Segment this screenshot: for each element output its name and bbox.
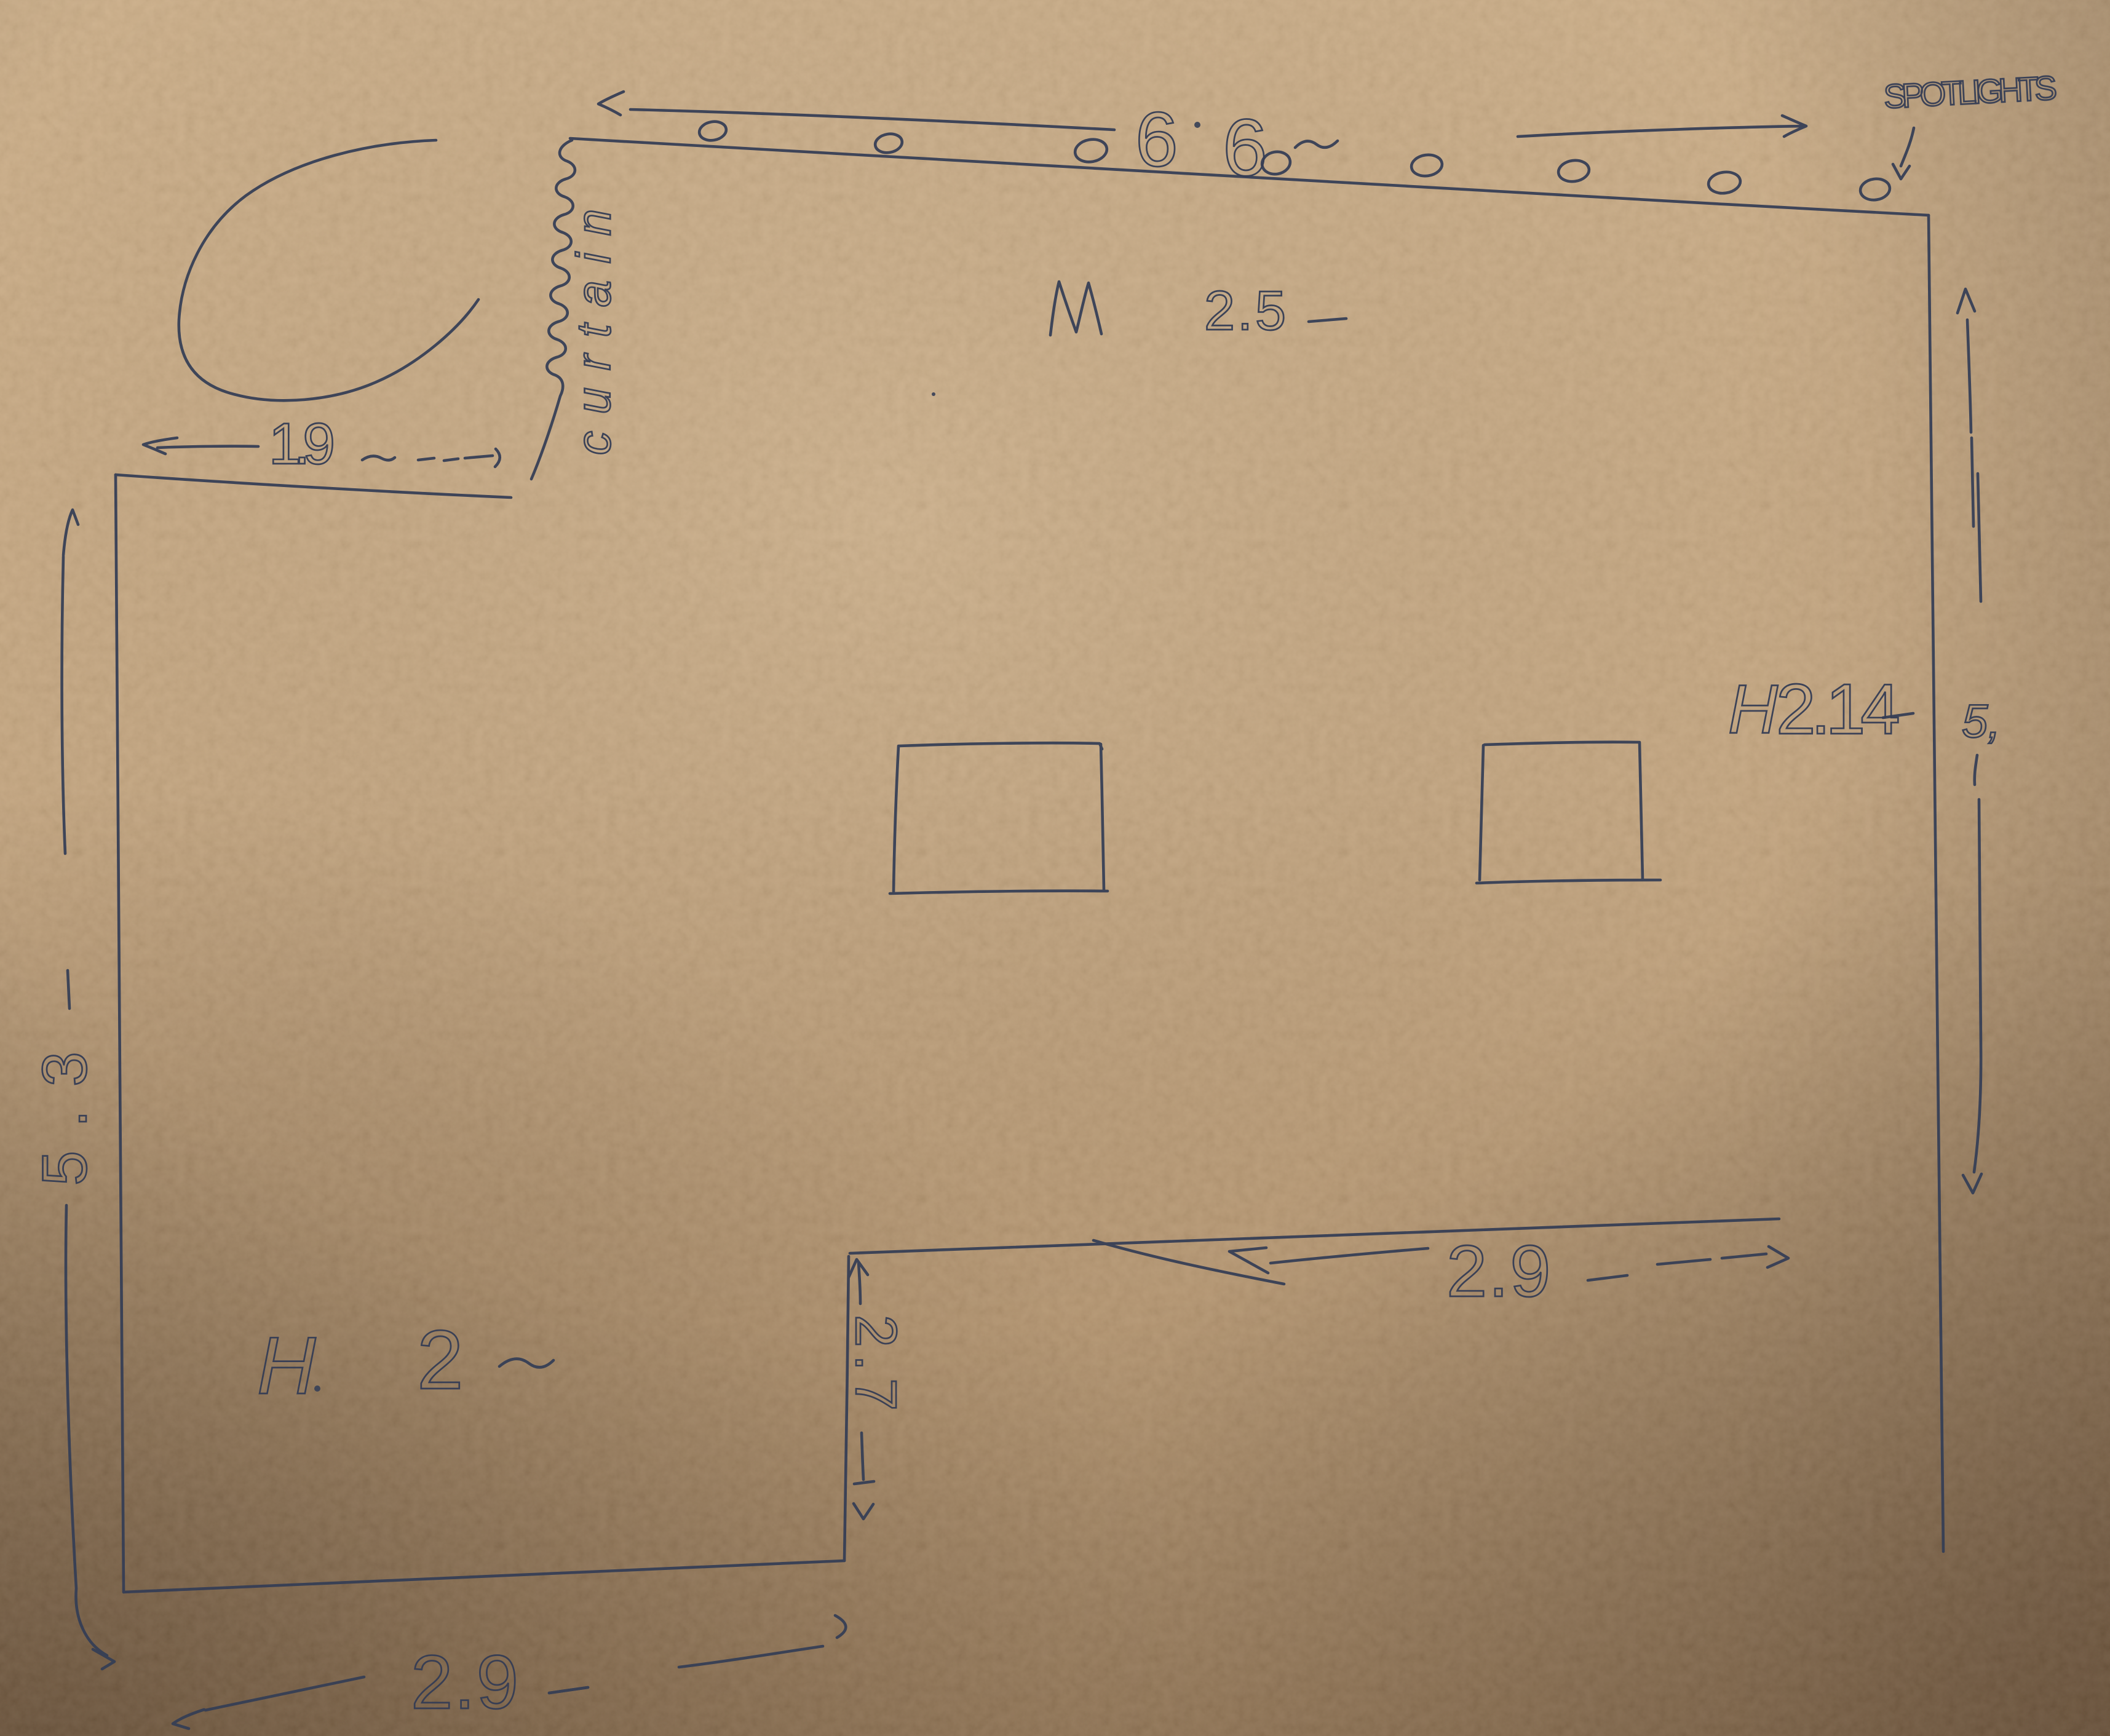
svg-text:2.9: 2.9 <box>411 1641 520 1725</box>
svg-text:6: 6 <box>1135 97 1178 183</box>
svg-text:2.5: 2.5 <box>1204 280 1288 342</box>
svg-text:5,: 5, <box>1962 696 2001 748</box>
svg-text:2.9: 2.9 <box>1446 1231 1552 1312</box>
svg-text:6: 6 <box>1223 102 1267 192</box>
svg-text:2.14: 2.14 <box>1776 669 1898 749</box>
svg-text:5.3: 5.3 <box>30 1028 100 1186</box>
svg-text:2.7: 2.7 <box>843 1315 908 1418</box>
svg-text:2: 2 <box>417 1313 464 1406</box>
svg-text:H: H <box>1728 671 1778 748</box>
svg-text:H: H <box>257 1320 316 1411</box>
svg-text:1.9: 1.9 <box>269 411 333 477</box>
